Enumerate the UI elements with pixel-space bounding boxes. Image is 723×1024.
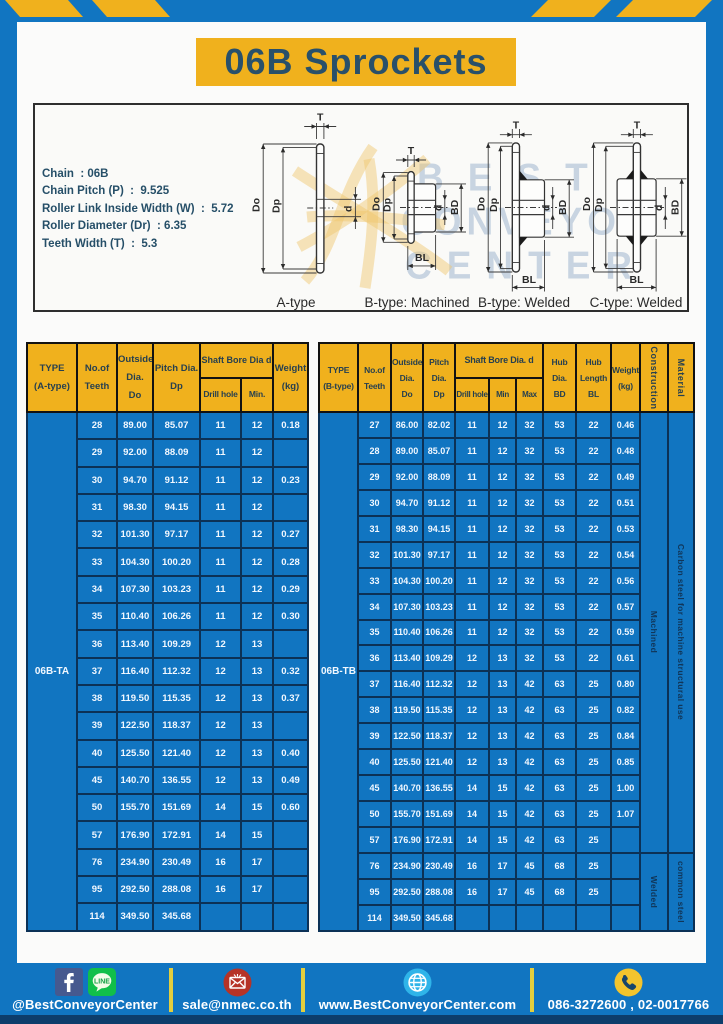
svg-text:BL: BL <box>630 274 645 286</box>
svg-text:d: d <box>433 205 445 211</box>
svg-text:Do: Do <box>581 197 593 211</box>
svg-text:C-type: Welded: C-type: Welded <box>590 295 683 310</box>
svg-text:Dp: Dp <box>488 198 500 212</box>
svg-text:T: T <box>408 145 415 157</box>
svg-text:d: d <box>540 205 552 211</box>
svg-text:T: T <box>634 120 641 132</box>
svg-text:Dp: Dp <box>271 199 283 213</box>
svg-text:BD: BD <box>557 199 569 215</box>
svg-text:BD: BD <box>669 199 681 215</box>
svg-text:Do: Do <box>476 197 488 211</box>
svg-text:T: T <box>513 120 520 132</box>
svg-text:B-type: Welded: B-type: Welded <box>478 295 570 310</box>
svg-text:Dp: Dp <box>593 198 605 212</box>
svg-text:d: d <box>343 206 355 212</box>
svg-text:LINE: LINE <box>94 978 110 985</box>
svg-text:B-type: Machined: B-type: Machined <box>364 295 469 310</box>
svg-text:BD: BD <box>449 199 461 215</box>
svg-text:BL: BL <box>522 274 537 286</box>
svg-text:T: T <box>317 112 324 124</box>
svg-text:BL: BL <box>415 252 430 264</box>
svg-text:Do: Do <box>251 198 263 212</box>
svg-text:A-type: A-type <box>276 295 315 310</box>
svg-text:Dp: Dp <box>381 198 393 212</box>
svg-text:d: d <box>653 205 665 211</box>
